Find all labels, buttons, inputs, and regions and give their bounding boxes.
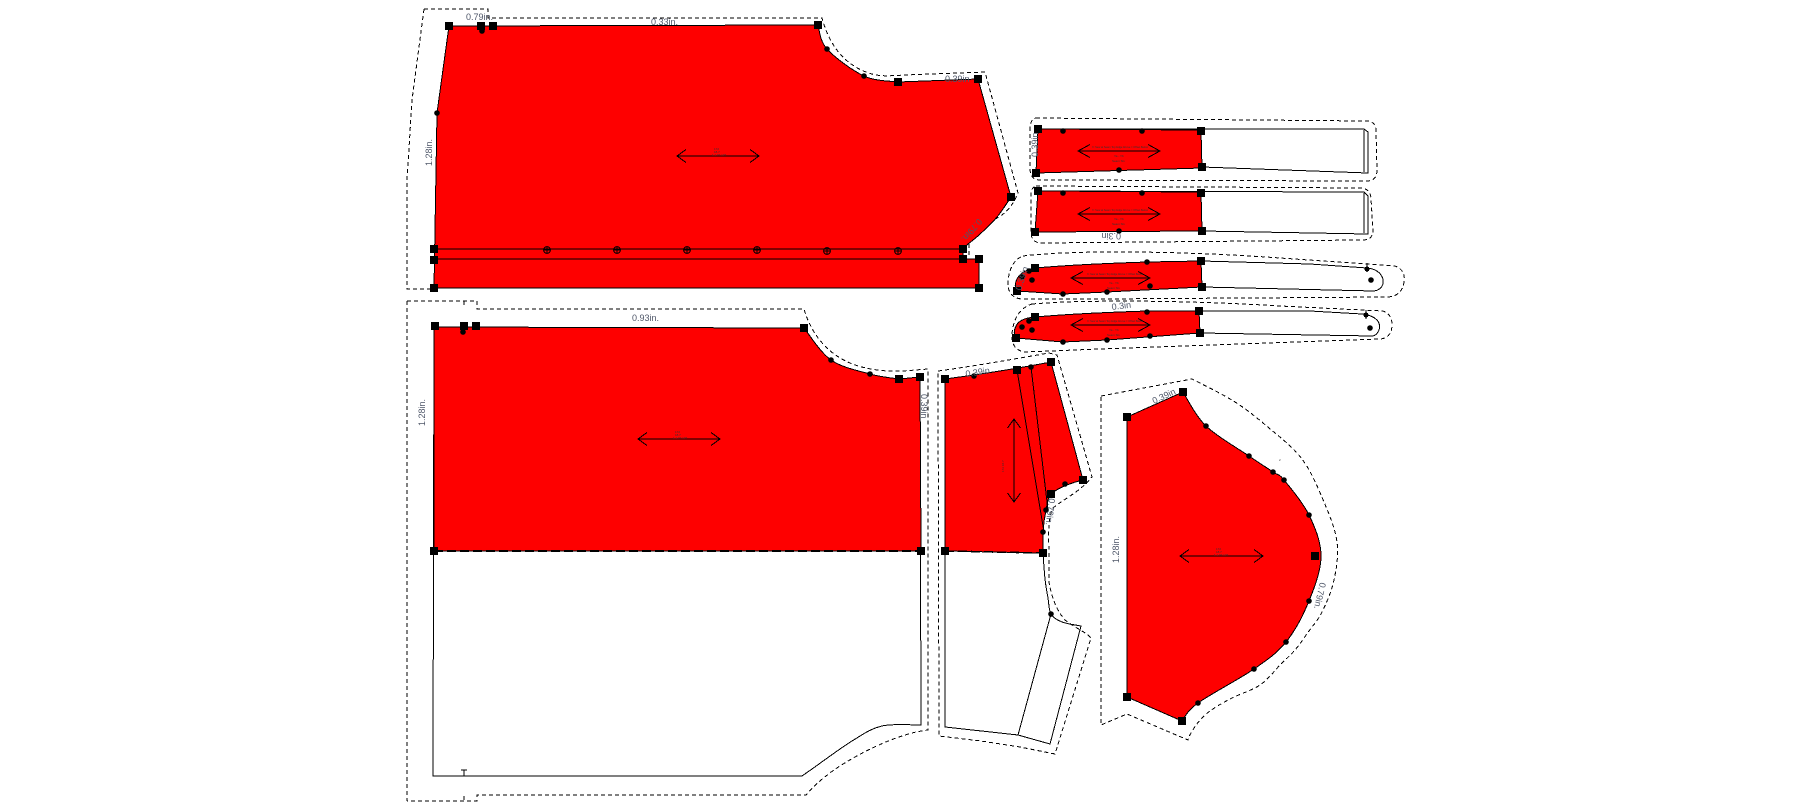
svg-text:1.1.97.107: 1.1.97.107: [712, 153, 727, 157]
svg-text:0.39in: 0.39in: [919, 394, 929, 419]
svg-text:X: Sew at Seam Top Edge Above: X: Sew at Seam Top Edge Above = Offset B…: [1087, 319, 1144, 323]
svg-text:0.39in: 0.39in: [1030, 132, 1040, 157]
svg-text:1.28in.: 1.28in.: [417, 399, 427, 426]
svg-text:Seam Slv: Seam Slv: [1107, 286, 1120, 290]
svg-text:X: Sew at Seam Top Edge Above: X: Sew at Seam Top Edge Above = Offset B…: [1092, 145, 1149, 149]
svg-text:1.1.97.107: 1.1.97.107: [1214, 553, 1229, 557]
svg-text:172 18.7: 172 18.7: [1001, 460, 1005, 472]
svg-text:Seam Slv: Seam Slv: [1112, 159, 1125, 163]
svg-text:X: Sew at Seam Top Edge Above: X: Sew at Seam Top Edge Above = Offset B…: [1087, 272, 1144, 276]
svg-text:Seam Slv: Seam Slv: [1112, 222, 1125, 226]
svg-text:0.39in: 0.39in: [945, 74, 970, 84]
svg-text:0.93in.: 0.93in.: [632, 313, 659, 323]
svg-text:1.28in.: 1.28in.: [424, 139, 434, 166]
svg-text:Ya - Yb: Ya - Yb: [1109, 281, 1119, 285]
svg-text:0.33in.: 0.33in.: [651, 17, 678, 27]
svg-text:0.79in.: 0.79in.: [466, 12, 493, 22]
svg-text:X: Sew at Seam Top Edge Above: X: Sew at Seam Top Edge Above = Offset B…: [1092, 208, 1149, 212]
svg-text:Ya - Yb: Ya - Yb: [1109, 328, 1119, 332]
svg-text:Ya - Yb: Ya - Yb: [1114, 217, 1124, 221]
svg-text:1.28in.: 1.28in.: [1111, 536, 1121, 563]
svg-text:1.1.97.107: 1.1.97.107: [673, 436, 688, 440]
svg-text:Seam Slv: Seam Slv: [1107, 333, 1120, 337]
svg-text:Ya - Yb: Ya - Yb: [1114, 154, 1124, 158]
svg-text:0.3in: 0.3in: [1101, 231, 1121, 241]
